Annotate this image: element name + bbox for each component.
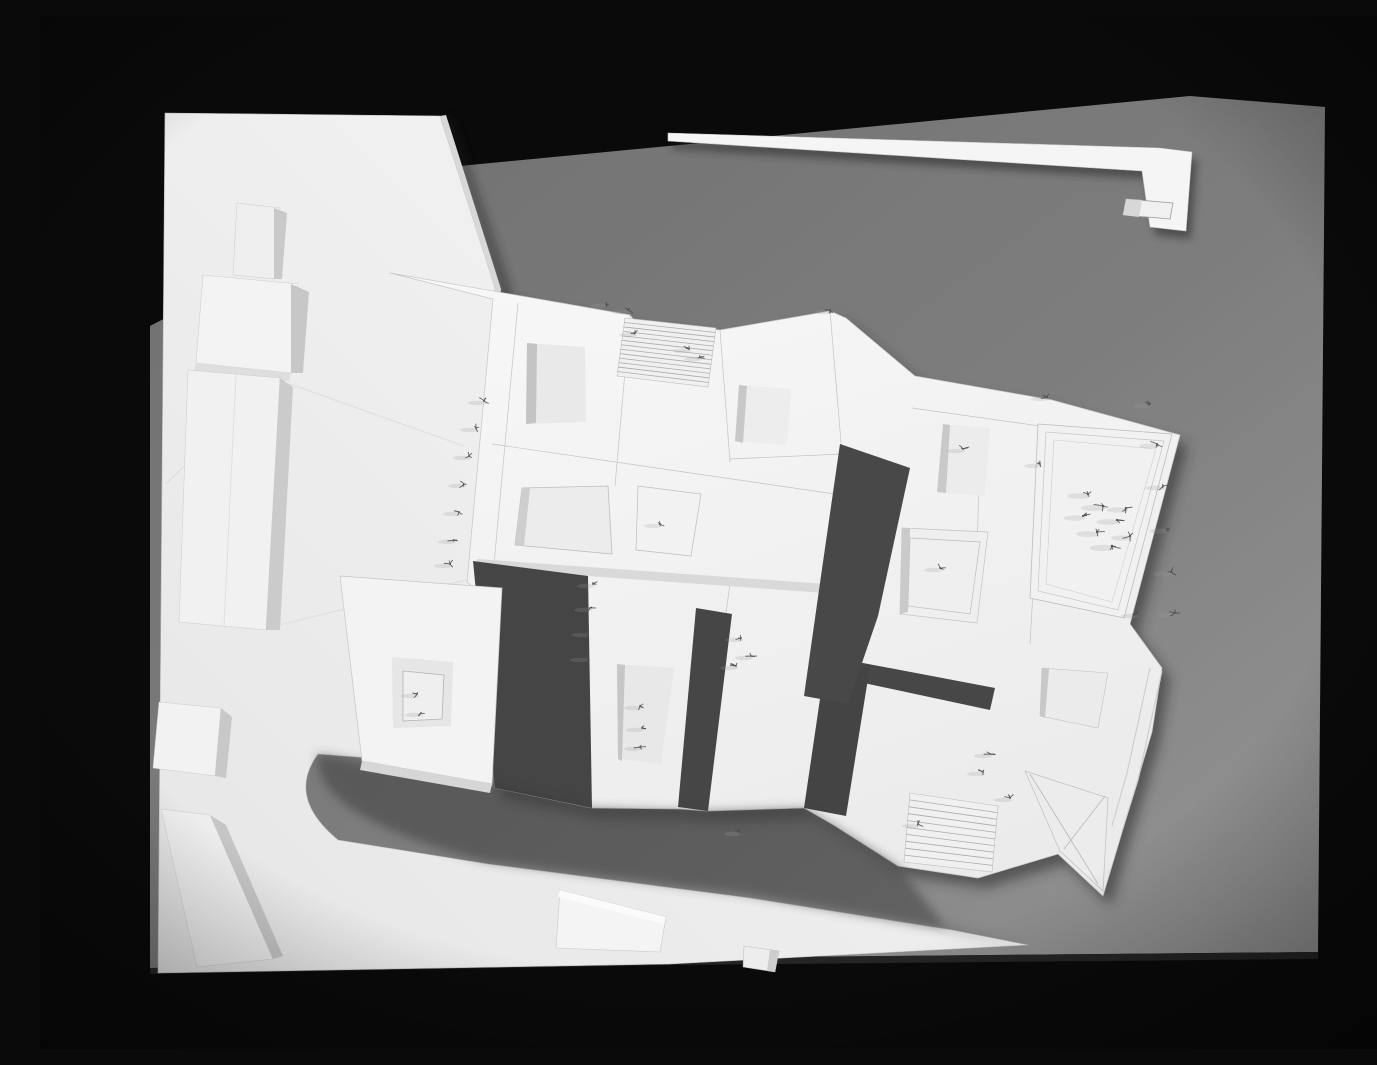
model-photo: Overhead black-and-white photograph of a… [40, 16, 1377, 1049]
model-photo-canvas [40, 16, 1377, 1049]
vignette [40, 16, 1377, 1049]
